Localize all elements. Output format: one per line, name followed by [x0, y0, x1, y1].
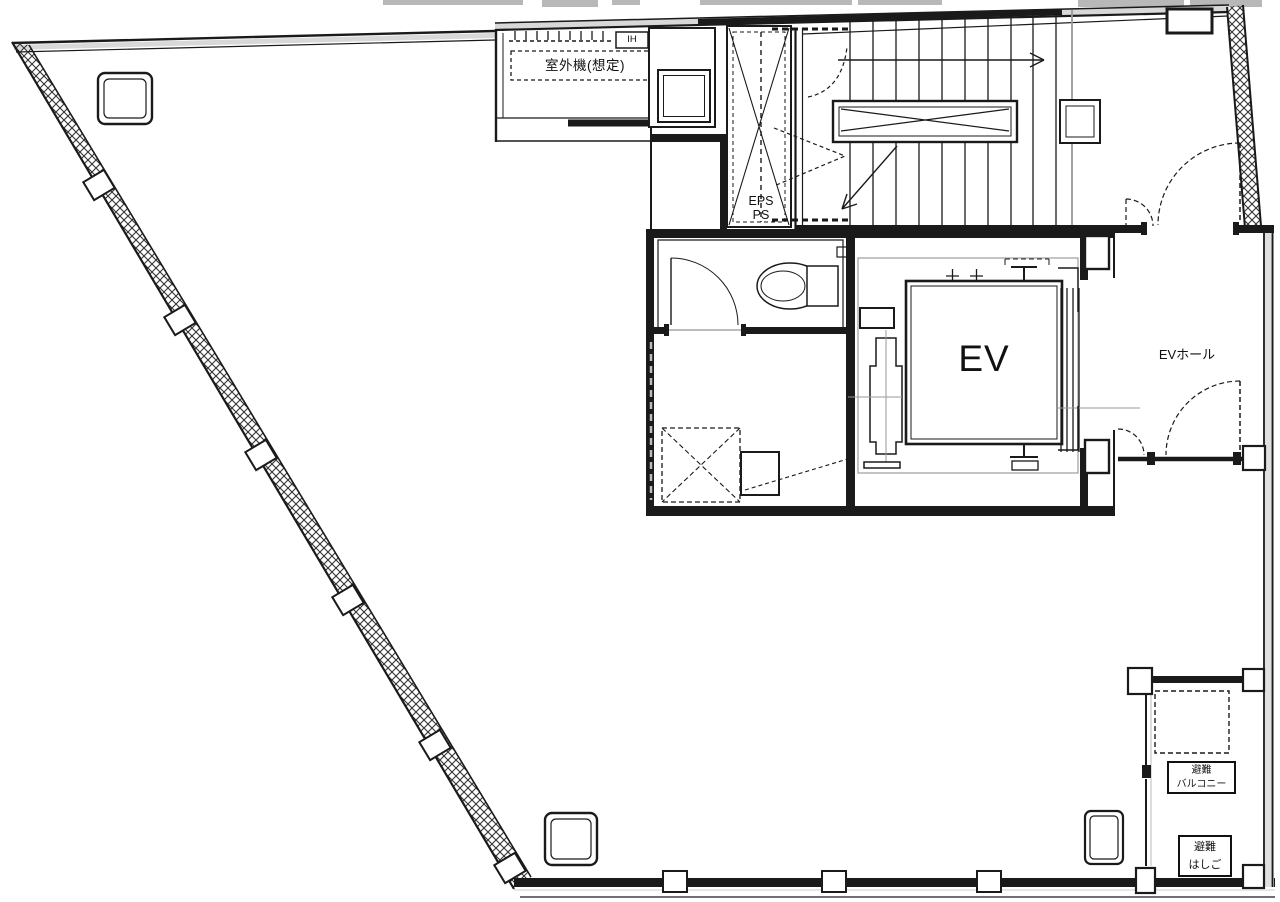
ev-hall-north-door — [1126, 143, 1240, 226]
eps-ps-label: EPS PS — [735, 194, 787, 222]
column — [1128, 668, 1152, 694]
stair-treads-lower — [850, 142, 988, 225]
elevator-label: EV — [906, 338, 1062, 380]
evac-balcony-label: 避難 バルコニー — [1167, 761, 1236, 794]
stair-up-arrow — [838, 53, 1044, 67]
toilet-fixture — [757, 247, 849, 309]
stair-treads-upper — [850, 13, 988, 101]
column — [1243, 446, 1265, 470]
toilet-room — [648, 240, 851, 336]
outdoor-unit-label: 室外機(想定) — [511, 52, 659, 80]
columns — [98, 73, 1123, 865]
eps-label: EPS — [735, 194, 787, 208]
wall-mullions — [83, 170, 1001, 892]
counterweight — [848, 308, 902, 468]
ih-label: IH — [616, 32, 648, 48]
scan-remnants — [383, 0, 1262, 7]
evac-ladder-label: 避難 はしご — [1178, 835, 1232, 877]
staircase — [772, 9, 1212, 233]
ev-hall-south-door — [1118, 381, 1265, 470]
column — [1085, 236, 1109, 269]
column — [1167, 9, 1212, 33]
balcony-hatch-dashed — [1155, 691, 1229, 753]
floor-plan: 室外機(想定) IH EPS PS EV EVホール 避難 バルコニー 避難 は… — [0, 0, 1280, 902]
column — [1085, 440, 1109, 473]
column — [1243, 865, 1264, 888]
ps-label: PS — [735, 208, 787, 222]
utility-room — [651, 342, 851, 502]
column — [1243, 669, 1264, 691]
elevator-sliding-door — [1056, 268, 1140, 452]
toilet-door — [671, 258, 738, 325]
floorplan-drawing — [0, 0, 1280, 902]
ev-hall-label: EVホール — [1137, 344, 1237, 363]
column — [1136, 868, 1155, 893]
